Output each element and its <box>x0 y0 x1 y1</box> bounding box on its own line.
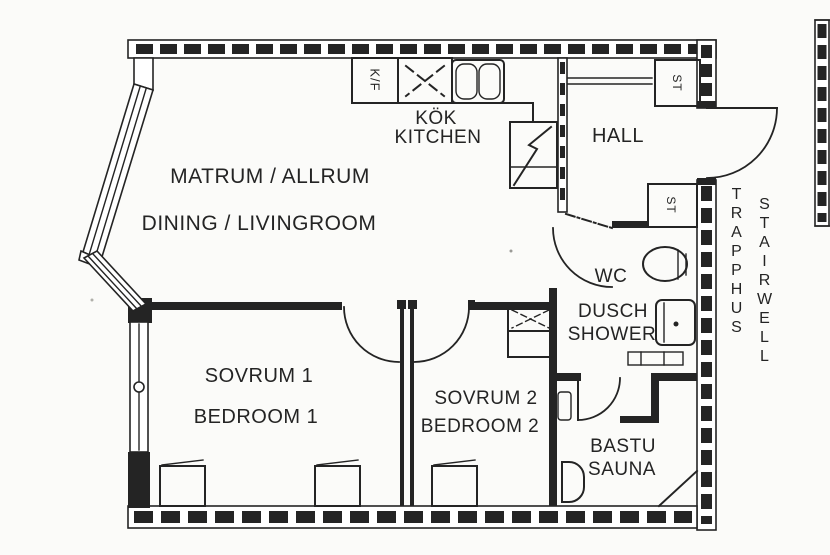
shaft-icon <box>510 122 557 188</box>
sink-icon <box>452 60 504 103</box>
label-sauna-sv: BASTU <box>590 437 656 456</box>
label-bedroom1-sv: SOVRUM 1 <box>205 366 313 386</box>
label-stairwell-en: STAIRWELL <box>756 196 772 367</box>
label-kitchen-en: KITCHEN <box>395 128 482 147</box>
bedroom1-door <box>344 307 399 362</box>
bedroom1-window <box>130 322 148 452</box>
label-bathroom-closet: ST <box>665 196 677 213</box>
label-sauna-en: SAUNA <box>588 460 656 479</box>
label-dusch: DUSCH <box>578 302 648 321</box>
label-bedroom1-en: BEDROOM 1 <box>194 407 319 427</box>
label-shower: SHOWER <box>568 325 657 344</box>
floor-plan-drawing <box>0 0 830 555</box>
scan-speck <box>91 299 94 302</box>
toilet-icon <box>643 247 687 281</box>
label-hall-closet: ST <box>671 74 683 91</box>
label-fridge-freezer: K/F <box>369 68 382 91</box>
adjacent-wall-fragment <box>815 20 830 226</box>
scan-speck <box>510 250 513 253</box>
washbasin-icon <box>656 300 695 345</box>
label-hall: HALL <box>592 126 644 146</box>
radiator-icon <box>160 460 477 506</box>
entrance-door <box>697 101 777 185</box>
sauna-door <box>578 377 620 420</box>
label-stairwell-sv: TRAPPHUS <box>728 186 744 338</box>
label-living-room-sv: MATRUM / ALLRUM <box>170 166 370 187</box>
sauna-heater-icon <box>562 462 584 502</box>
label-living-room-en: DINING / LIVINGROOM <box>142 213 377 234</box>
sauna-control-box <box>558 392 571 420</box>
label-bedroom2-sv: SOVRUM 2 <box>434 389 537 408</box>
floorplan-page: MATRUM / ALLRUM DINING / LIVINGROOM KÖK … <box>0 0 830 555</box>
bay-window <box>79 58 153 311</box>
label-bedroom2-en: BEDROOM 2 <box>421 417 540 436</box>
label-wc: WC <box>595 267 628 286</box>
sauna-corner-bench <box>659 471 697 506</box>
bedroom2-door <box>414 307 469 362</box>
bedroom2-closet <box>508 307 553 357</box>
shower-drain-icon <box>628 352 683 365</box>
label-kitchen-sv: KÖK <box>415 109 457 128</box>
